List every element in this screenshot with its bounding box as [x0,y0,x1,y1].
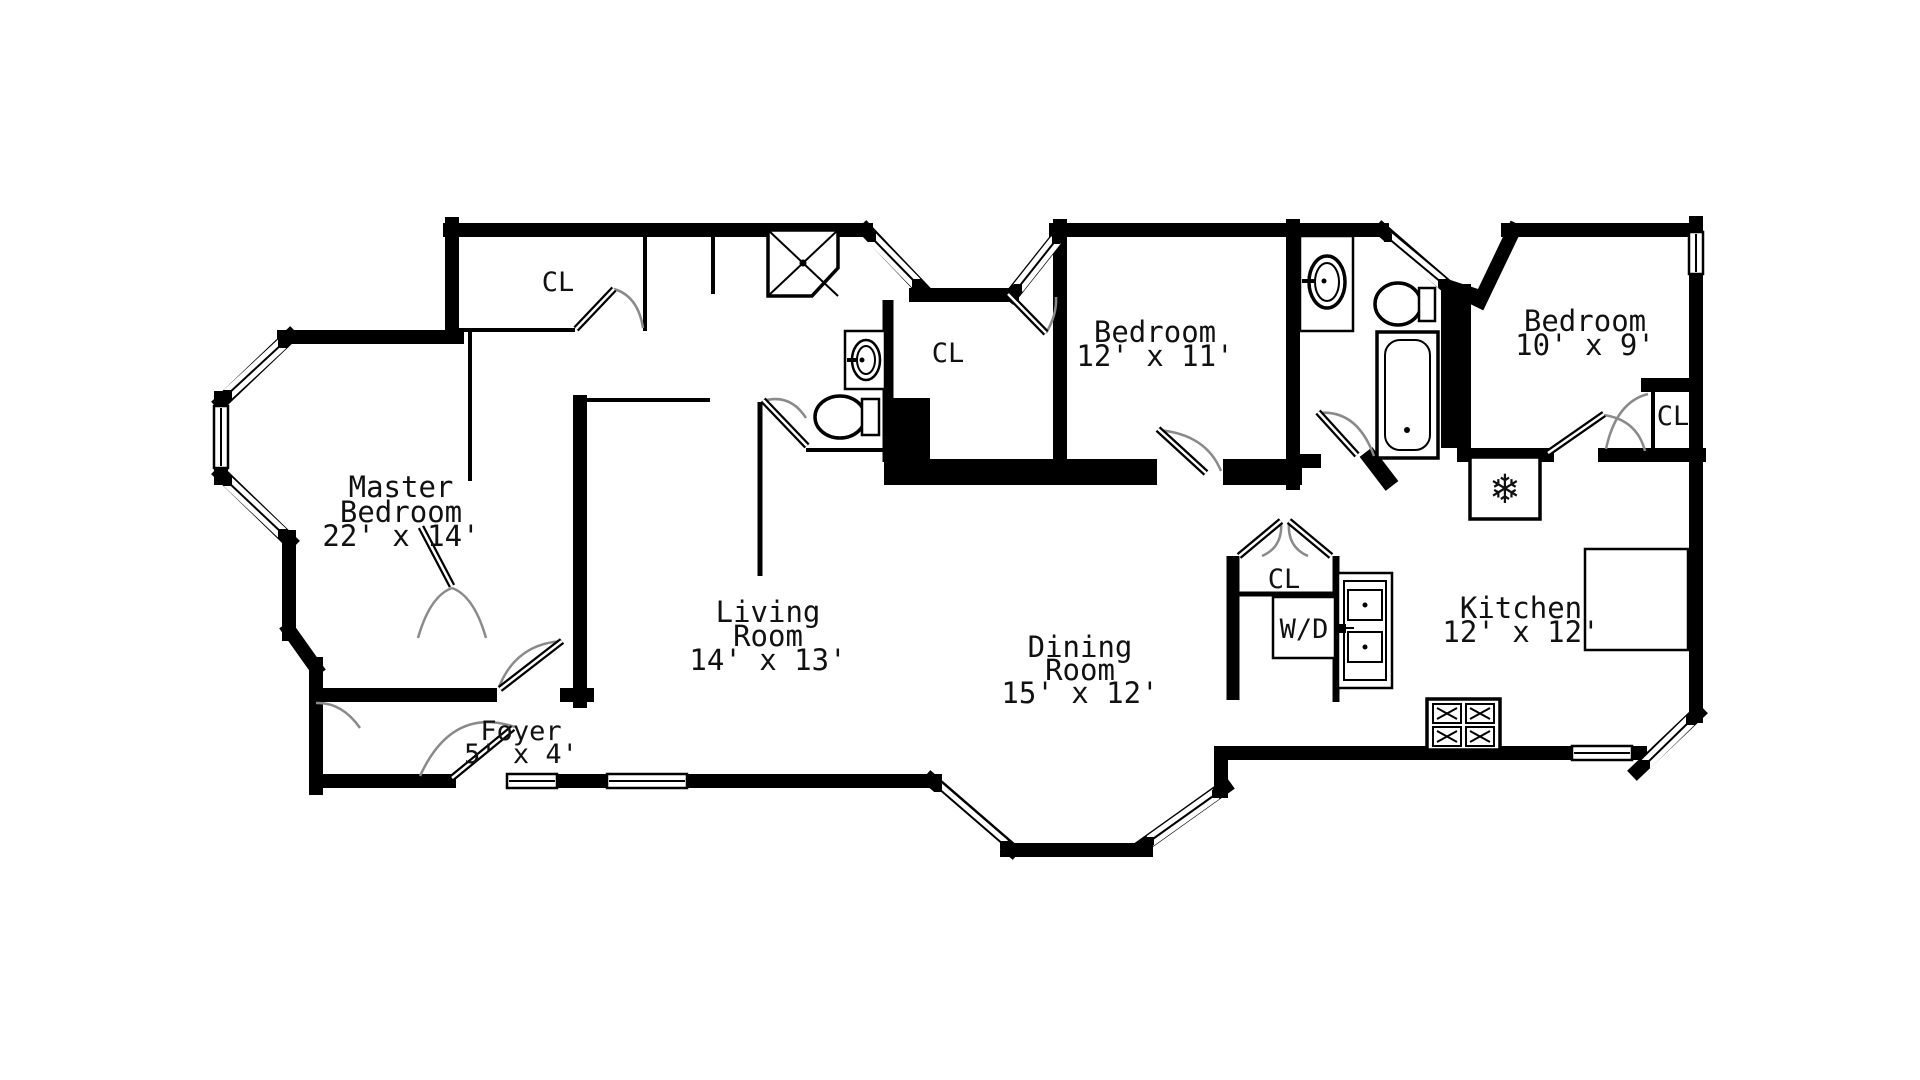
label-foyer-dims: 5' x 4' [464,739,578,770]
bathroom2-toilet [1375,283,1435,325]
snowflake-icon: ❄ [1492,463,1519,514]
label-master-closet: CL [542,267,575,298]
bathtub [1377,332,1438,458]
stove [1427,699,1500,750]
label-bedroom-right-closet: CL [1657,401,1690,432]
floor-plan: ❄ Master Bedroom 22' x 14' Living Room 1… [0,0,1920,1080]
label-hall-closet: CL [932,338,965,369]
label-kitchen-dims: 12' x 12' [1442,615,1599,649]
kitchen-counter [1585,549,1688,650]
bathroom1-toilet [815,396,879,438]
label-washer-dryer: W/D [1280,614,1329,645]
bathroom2-sink [1300,236,1353,331]
shower-stall [768,230,838,296]
refrigerator: ❄ [1470,457,1540,519]
kitchen-sink [1336,573,1392,688]
label-dining-room-dims: 15' x 12' [1001,676,1158,710]
label-living-room-dims: 14' x 13' [689,643,846,677]
label-utility-closet: CL [1268,564,1301,595]
label-master-bedroom-dims: 22' x 14' [322,519,479,553]
label-bedroom-right-dims: 10' x 9' [1515,328,1655,362]
bathroom1-sink [845,331,885,389]
floor-plan-page: ❄ Master Bedroom 22' x 14' Living Room 1… [0,0,1920,1080]
label-bedroom-middle-dims: 12' x 11' [1076,339,1233,373]
